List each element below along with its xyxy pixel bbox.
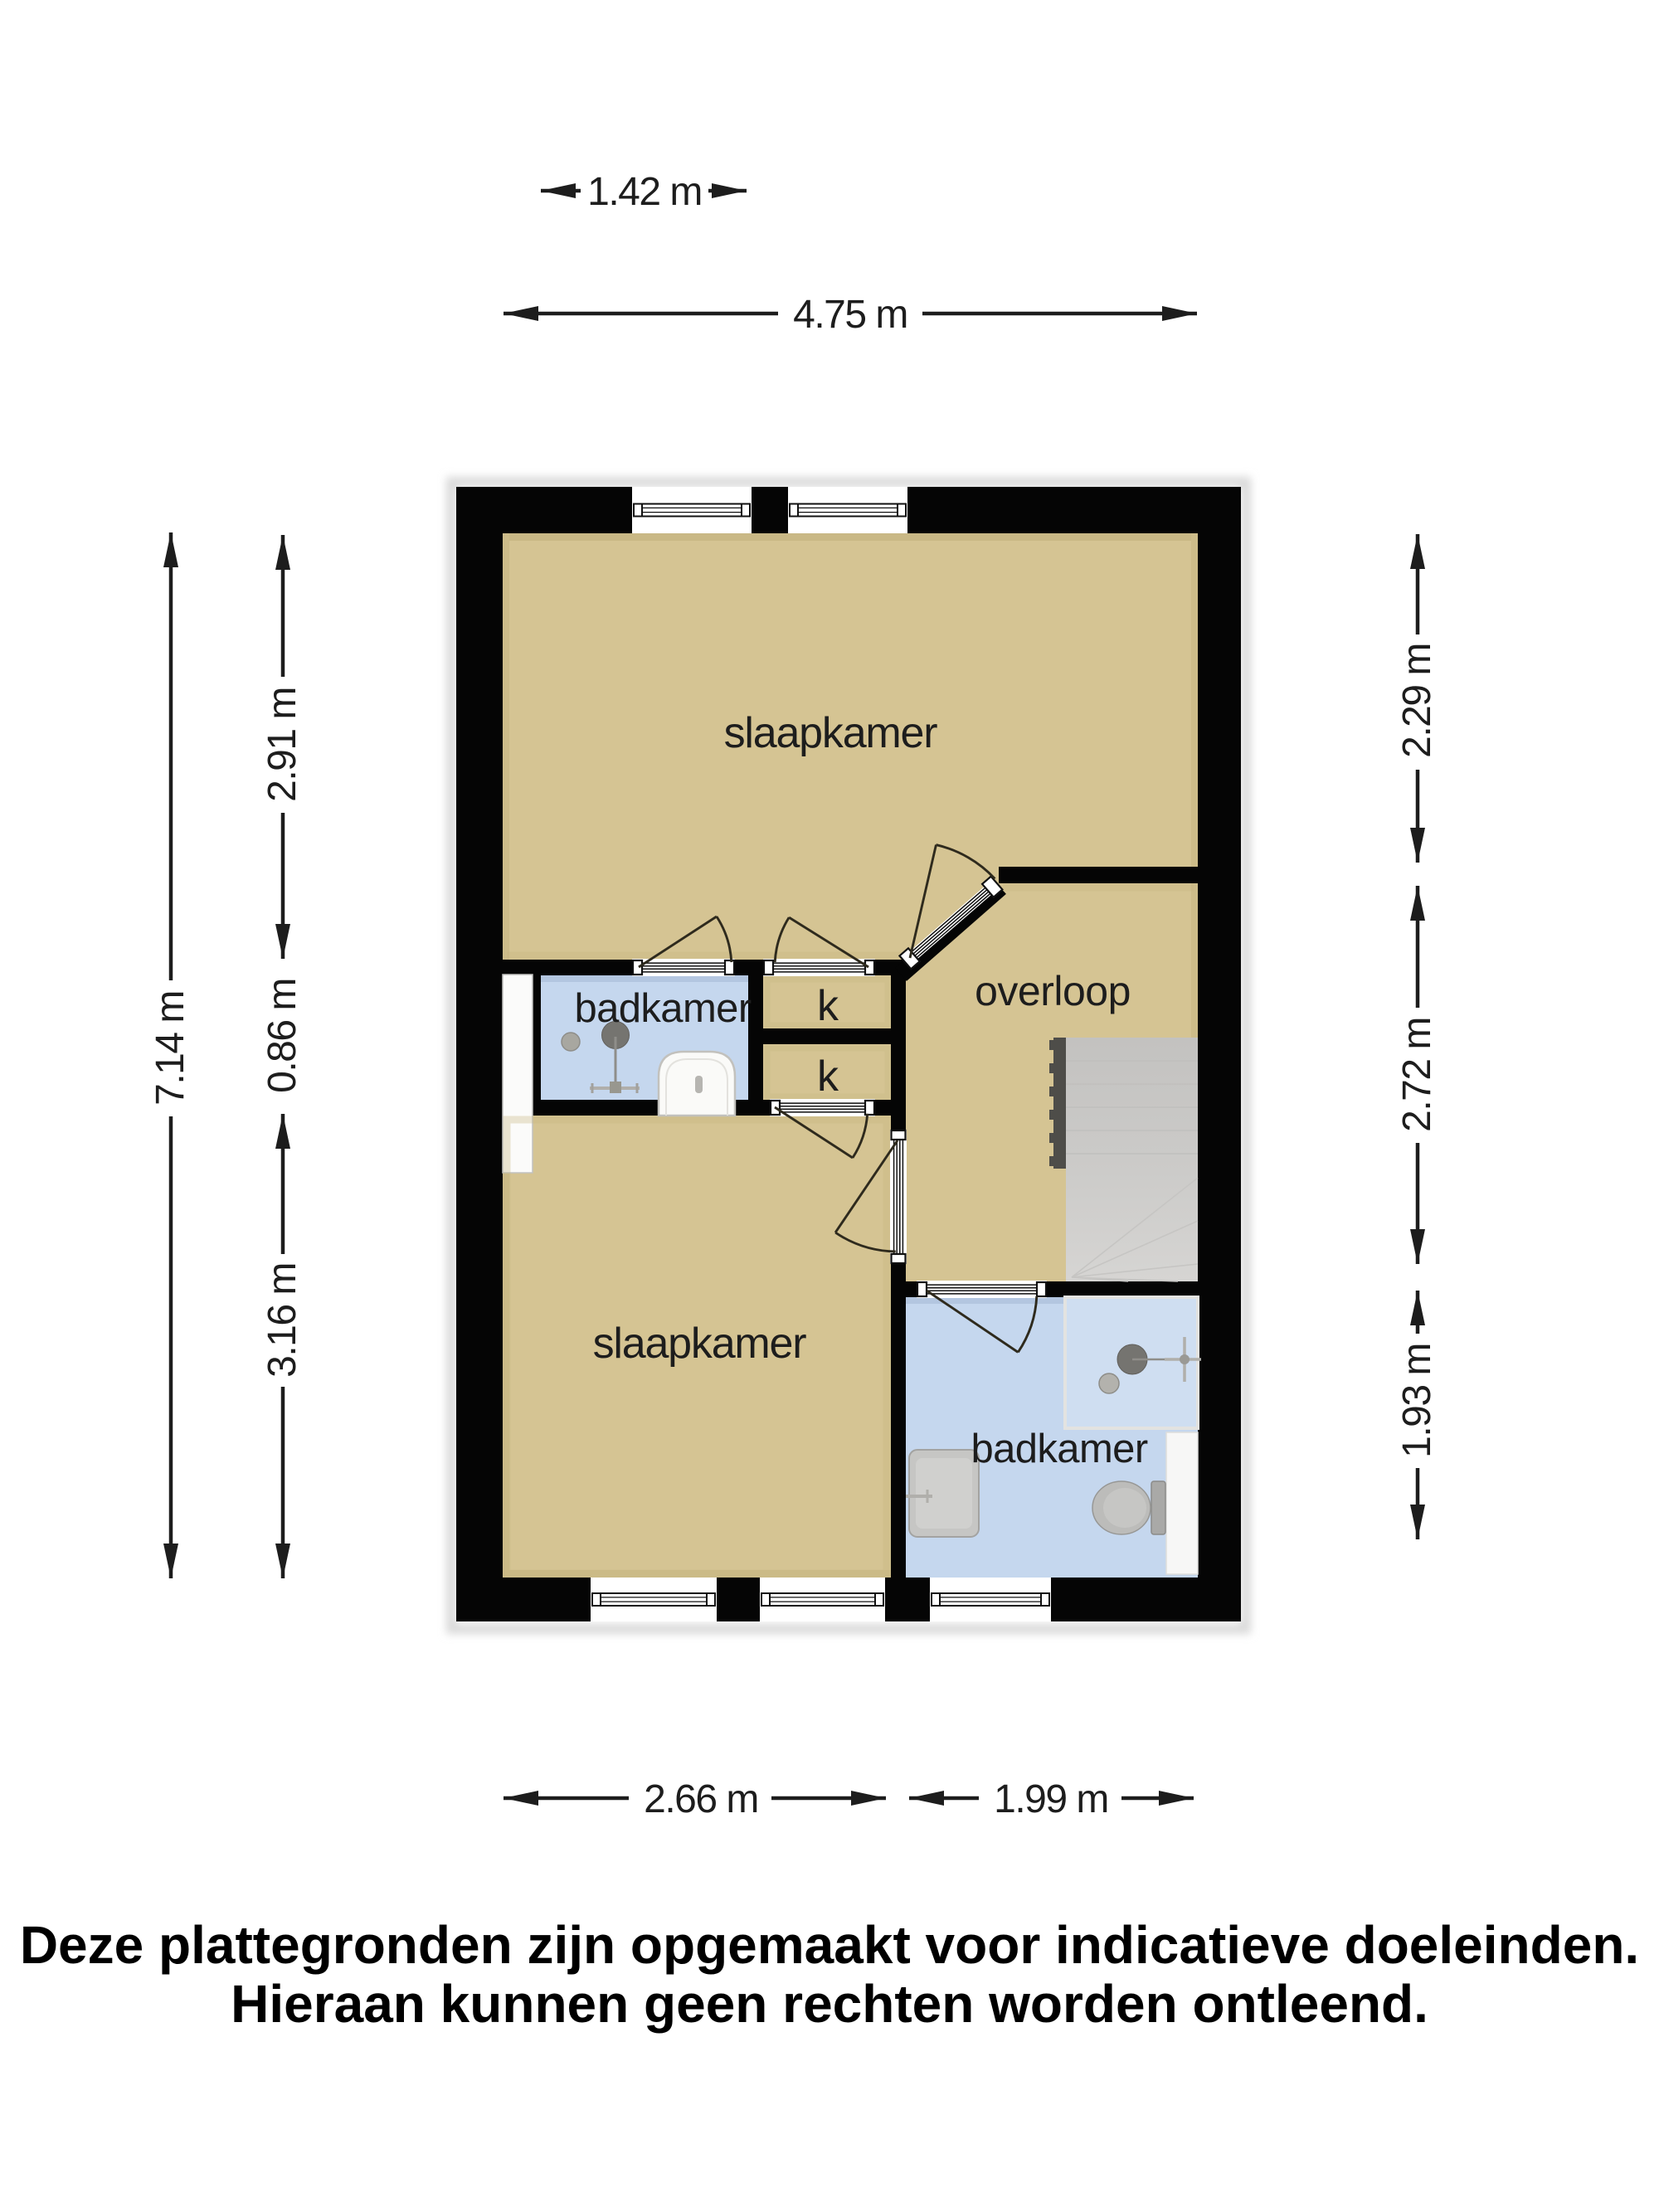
svg-text:2.72 m: 2.72 m [1395, 1018, 1439, 1132]
svg-text:1.99 m: 1.99 m [994, 1777, 1108, 1821]
svg-text:slaapkamer: slaapkamer [593, 1320, 807, 1368]
svg-text:1.93 m: 1.93 m [1395, 1344, 1439, 1458]
svg-text:2.91 m: 2.91 m [260, 688, 304, 802]
svg-text:2.66 m: 2.66 m [644, 1777, 758, 1821]
svg-text:badkamer: badkamer [971, 1427, 1147, 1471]
svg-text:Hieraan kunnen geen rechten wo: Hieraan kunnen geen rechten worden ontle… [231, 1974, 1428, 2034]
svg-text:1.42 m: 1.42 m [587, 170, 702, 214]
svg-text:4.75 m: 4.75 m [793, 293, 907, 337]
svg-text:3.16 m: 3.16 m [260, 1263, 304, 1378]
svg-text:7.14 m: 7.14 m [148, 991, 192, 1106]
svg-text:k: k [817, 1053, 839, 1101]
svg-text:2.29 m: 2.29 m [1395, 644, 1439, 758]
svg-text:Deze plattegronden zijn opgema: Deze plattegronden zijn opgemaakt voor i… [20, 1915, 1639, 1975]
svg-text:badkamer: badkamer [574, 986, 751, 1031]
svg-text:slaapkamer: slaapkamer [724, 709, 938, 757]
svg-text:0.86 m: 0.86 m [260, 979, 304, 1093]
svg-text:overloop: overloop [975, 968, 1131, 1014]
svg-text:k: k [817, 982, 839, 1030]
